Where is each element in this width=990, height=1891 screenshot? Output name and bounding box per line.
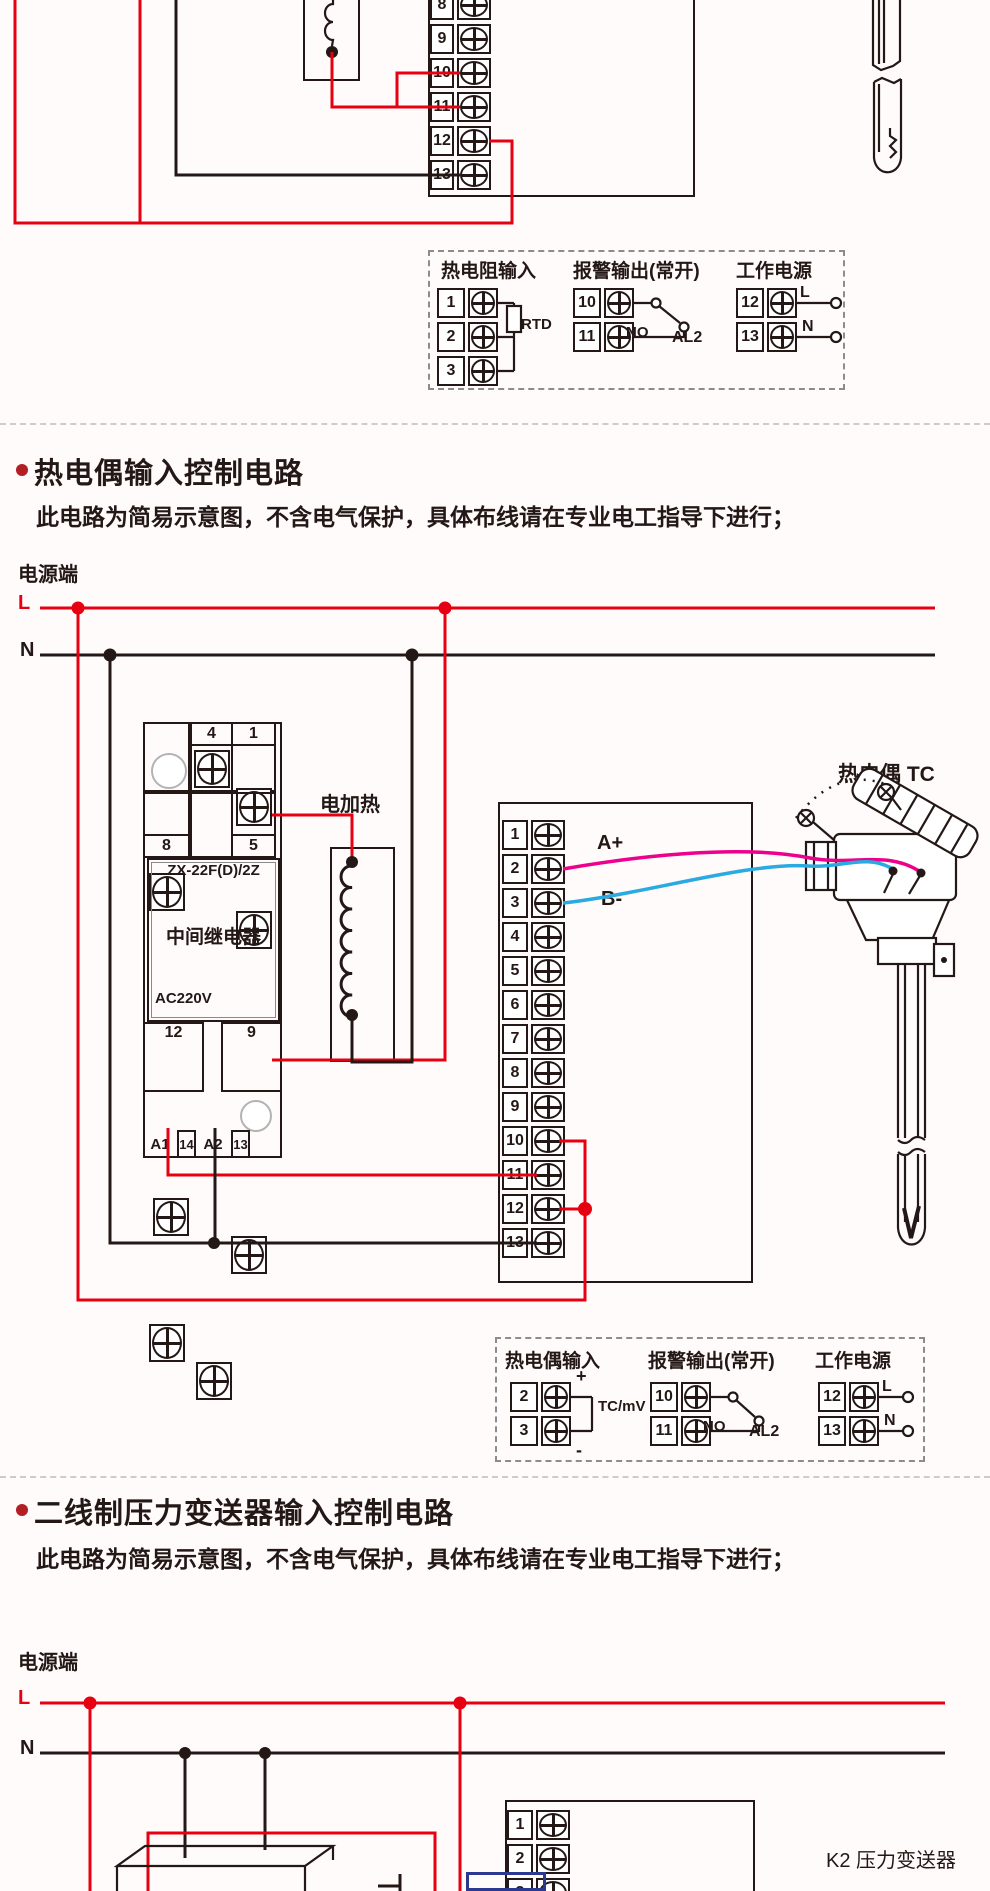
heater-box (330, 847, 395, 1062)
terminal-row: 3 (510, 1416, 571, 1446)
relay-screw-9-icon (231, 1236, 267, 1274)
terminal-screw-icon (531, 854, 565, 884)
terminal-number: 1 (507, 1810, 533, 1840)
relay-screw-4-icon (194, 750, 230, 788)
terminal-row: 11 (573, 322, 634, 352)
terminal-row: 9 (430, 24, 491, 54)
wire-label-a-plus: A+ (597, 832, 623, 855)
terminal-row: 12 (736, 288, 797, 318)
relay-screw-a2-icon (196, 1362, 232, 1400)
minus-label: - (576, 1440, 582, 1461)
terminal-row: 12 (430, 126, 491, 156)
terminal-row: 2 (437, 322, 498, 352)
terminal-screw-icon (457, 0, 491, 20)
terminal-screw-icon (531, 990, 565, 1020)
terminal-row: 7 (502, 1024, 565, 1054)
live-label: L (800, 284, 810, 302)
terminal-screw-icon (604, 288, 634, 318)
terminal-screw-icon (531, 1126, 565, 1156)
terminal-screw-icon (531, 922, 565, 952)
terminal-row: 2 (510, 1382, 571, 1412)
terminal-row: 12 (502, 1194, 565, 1224)
heater-label: 电加热 (320, 788, 380, 817)
terminal-screw-icon (531, 956, 565, 986)
relay-cell (190, 792, 233, 858)
relay-terminal-label-8: 8 (143, 834, 190, 858)
terminal-row: 10 (430, 58, 491, 88)
relay-terminal-label-5: 5 (231, 834, 276, 858)
neutral-rail-label: N (20, 1737, 34, 1760)
section-divider (0, 1476, 990, 1478)
terminal-number: 13 (430, 160, 454, 190)
relay-screw-12-icon (153, 1198, 189, 1236)
terminal-screw-icon (531, 1058, 565, 1088)
relay-name: 中间继电器 (150, 922, 277, 949)
terminal-row: 2 (502, 854, 565, 884)
relay-terminal-label-4: 4 (190, 722, 233, 746)
terminal-row: 11 (650, 1416, 711, 1446)
relay-model: ZX-22F(D)/2Z (150, 862, 277, 879)
terminal-row: 10 (502, 1126, 565, 1156)
terminal-screw-icon (531, 1092, 565, 1122)
live-rail-label: L (18, 1687, 30, 1710)
terminal-row: 5 (502, 956, 565, 986)
highlight-rect (466, 1872, 546, 1891)
pressure-diagram-wires (40, 1697, 945, 1891)
relay-screw-a1-icon (149, 1324, 185, 1362)
terminal-strip-top: 8 9 10 11 12 13 (430, 0, 491, 190)
terminal-number: 11 (430, 92, 454, 122)
wiring-manual-page: 8 9 10 11 12 13 热电阻输入 报警输出(常开) 工作电源 1 2 (0, 0, 990, 1891)
relay-terminal-label-9: 9 (221, 1024, 282, 1042)
terminal-row: 3 (502, 888, 565, 918)
terminal-number: 1 (502, 820, 528, 850)
terminal-number: 9 (502, 1092, 528, 1122)
legend-title-alarm-output: 报警输出(常开) (573, 256, 700, 283)
terminal-row: 10 (573, 288, 634, 318)
terminal-number: 11 (502, 1160, 528, 1190)
terminal-screw-icon (767, 288, 797, 318)
terminal-row: 8 (430, 0, 491, 20)
rtd-probe-icon (873, 0, 901, 172)
relay-coil-label-a2: A2 (196, 1136, 230, 1153)
terminal-number: 12 (502, 1194, 528, 1224)
terminal-screw-icon (536, 1844, 570, 1874)
relay-coil-box-top (303, 0, 360, 81)
terminal-screw-icon (531, 1194, 565, 1224)
terminal-row: 2 (507, 1844, 570, 1874)
terminal-row: 13 (818, 1416, 879, 1446)
terminal-screw-icon (849, 1416, 879, 1446)
relay-coil-label-13: 13 (231, 1130, 250, 1158)
wire-label-b-minus: B- (601, 888, 622, 911)
live-label: L (882, 1378, 892, 1396)
legend-alarm-terminals: 10 11 (650, 1382, 711, 1446)
relay-coil-label-a1: A1 (143, 1136, 177, 1153)
relay-terminal-label-12: 12 (143, 1024, 204, 1042)
terminal-screw-icon (457, 92, 491, 122)
neutral-label: N (802, 318, 814, 336)
terminal-number: 2 (507, 1844, 533, 1874)
terminal-screw-icon (536, 1810, 570, 1840)
neutral-label: N (884, 1412, 896, 1430)
power-source-label: 电源端 (18, 558, 78, 587)
section-divider (0, 423, 990, 425)
terminal-screw-icon (531, 1024, 565, 1054)
terminal-screw-icon (468, 322, 498, 352)
terminal-number: 12 (736, 288, 764, 318)
terminal-screw-icon (531, 888, 565, 918)
terminal-screw-icon (541, 1382, 571, 1412)
legend-alarm-terminals: 10 11 (573, 288, 634, 352)
terminal-number: 11 (573, 322, 601, 352)
terminal-screw-icon (468, 356, 498, 386)
terminal-screw-icon (541, 1416, 571, 1446)
legend-rtd-terminals: 1 2 3 (437, 288, 498, 386)
terminal-number: 10 (502, 1126, 528, 1156)
terminal-number: 4 (502, 922, 528, 952)
section-subtitle-pressure: 此电路为简易示意图，不含电气保护，具体布线请在专业电工指导下进行； (36, 1540, 795, 1574)
terminal-row: 4 (502, 922, 565, 952)
terminal-screw-icon (457, 24, 491, 54)
legend-title-rtd-input: 热电阻输入 (441, 256, 536, 283)
terminal-number: 10 (430, 58, 454, 88)
legend-power-terminals: 12 13 (736, 288, 797, 352)
terminal-number: 13 (818, 1416, 846, 1446)
terminal-row: 13 (736, 322, 797, 352)
relay-terminal-label-1: 1 (231, 722, 276, 746)
terminal-screw-icon (681, 1382, 711, 1412)
terminal-number: 8 (502, 1058, 528, 1088)
terminal-row: 1 (507, 1810, 570, 1840)
terminal-number: 9 (430, 24, 454, 54)
terminal-number: 2 (502, 854, 528, 884)
terminal-screw-icon (531, 1228, 565, 1258)
terminal-row: 12 (818, 1382, 879, 1412)
pressure-transmitter-label: K2 压力变送器 (826, 1844, 956, 1873)
terminal-screw-icon (767, 322, 797, 352)
legend-title-power: 工作电源 (736, 256, 812, 283)
terminal-row: 1 (502, 820, 565, 850)
power-source-label: 电源端 (18, 1646, 78, 1675)
section-heading-tc: 热电偶输入控制电路 (34, 450, 304, 492)
legend-tc-terminals: 2 3 (510, 1382, 571, 1446)
terminal-number: 7 (502, 1024, 528, 1054)
terminal-number: 2 (510, 1382, 538, 1412)
terminal-number: 3 (510, 1416, 538, 1446)
terminal-screw-icon (457, 126, 491, 156)
terminal-screw-icon (457, 160, 491, 190)
section-subtitle-tc: 此电路为简易示意图，不含电气保护，具体布线请在专业电工指导下进行； (36, 498, 795, 532)
terminal-number: 5 (502, 956, 528, 986)
terminal-screw-icon (849, 1382, 879, 1412)
al2-label: AL2 (672, 329, 702, 347)
terminal-screw-icon (468, 288, 498, 318)
terminal-number: 8 (430, 0, 454, 20)
no-contact-label: NO (703, 1418, 726, 1435)
relay-indicator-circle (151, 753, 187, 789)
al2-label: AL2 (749, 1423, 779, 1441)
terminal-number: 11 (650, 1416, 678, 1446)
terminal-row: 6 (502, 990, 565, 1020)
terminal-number: 13 (502, 1228, 528, 1258)
no-contact-label: NO (626, 324, 649, 341)
plus-label: + (576, 1366, 587, 1387)
live-rail-label: L (18, 592, 30, 615)
terminal-row: 13 (502, 1228, 565, 1258)
terminal-screw-icon (531, 820, 565, 850)
legend-title-power: 工作电源 (815, 1346, 891, 1373)
terminal-screw-icon (457, 58, 491, 88)
terminal-row: 13 (430, 160, 491, 190)
legend-power-terminals: 12 13 (818, 1382, 879, 1446)
neutral-rail-label: N (20, 639, 34, 662)
terminal-row: 9 (502, 1092, 565, 1122)
tc-mv-label: TC/mV (598, 1398, 646, 1415)
relay-indicator-circle (240, 1100, 272, 1132)
terminal-screw-icon (531, 1160, 565, 1190)
terminal-number: 1 (437, 288, 465, 318)
rtd-label: RTD (521, 316, 552, 333)
terminal-number: 10 (650, 1382, 678, 1412)
terminal-number: 10 (573, 288, 601, 318)
relay-voltage: AC220V (155, 990, 212, 1007)
terminal-row: 8 (502, 1058, 565, 1088)
terminal-row: 1 (437, 288, 498, 318)
section-heading-pressure: 二线制压力变送器输入控制电路 (34, 1490, 454, 1532)
section-bullet-icon (16, 1504, 28, 1516)
terminal-number: 6 (502, 990, 528, 1020)
relay-coil-label-14: 14 (177, 1130, 196, 1158)
legend-title-alarm-output: 报警输出(常开) (648, 1346, 775, 1373)
thermocouple-label: 热电偶 TC (838, 758, 935, 788)
terminal-number: 3 (437, 356, 465, 386)
terminal-row: 3 (437, 356, 498, 386)
terminal-strip-tc: 1 2 3 4 5 6 7 8 9 10 (502, 820, 565, 1258)
terminal-row: 11 (502, 1160, 565, 1190)
terminal-row: 10 (650, 1382, 711, 1412)
terminal-number: 13 (736, 322, 764, 352)
terminal-number: 12 (430, 126, 454, 156)
terminal-number: 3 (502, 888, 528, 918)
terminal-number: 2 (437, 322, 465, 352)
section-bullet-icon (16, 464, 28, 476)
terminal-row: 11 (430, 92, 491, 122)
terminal-number: 12 (818, 1382, 846, 1412)
